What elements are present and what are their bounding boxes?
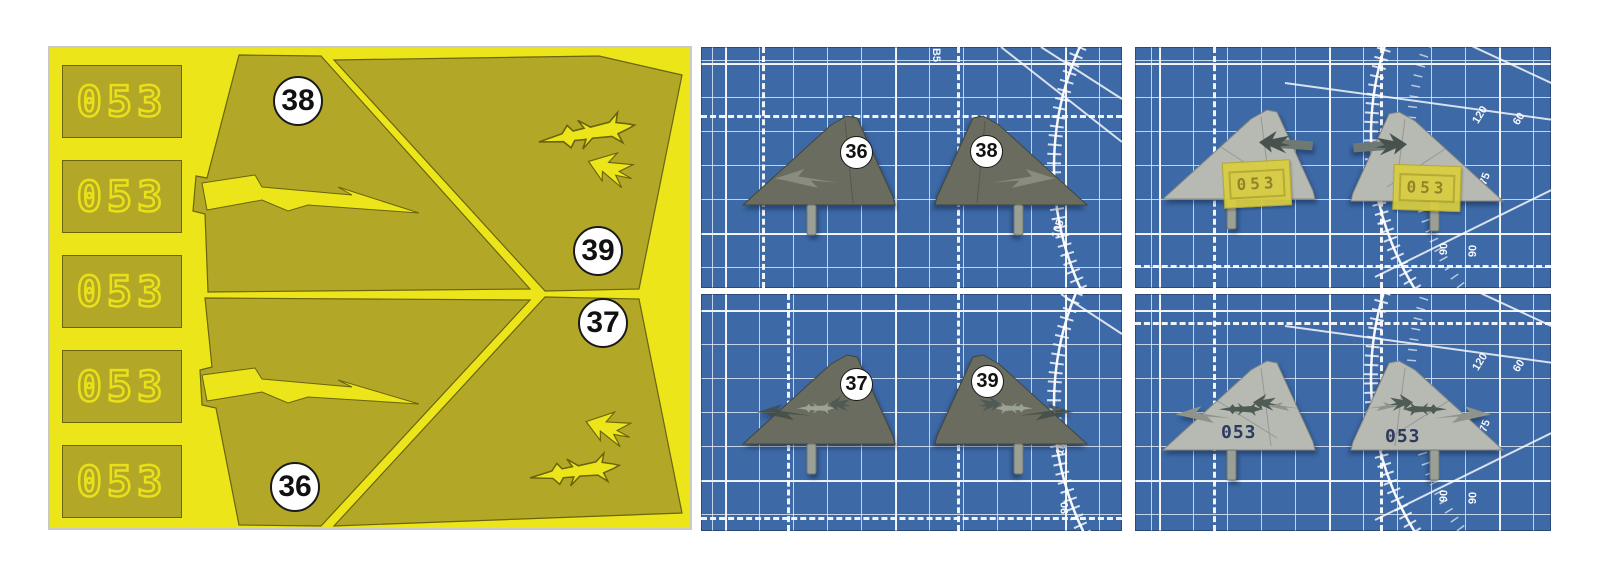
fin-number-stencil-right: 053 xyxy=(1385,426,1421,447)
photo-fins-masked: 120 60 105 75 90 90 053 053 xyxy=(1135,47,1551,288)
mat-degree-label: 90 xyxy=(1438,243,1450,256)
modeling-collage: 053 053 053 053 053 38 39 37 36 B5 105 xyxy=(0,0,1610,588)
fin-number-badge-38: 38 xyxy=(970,135,1003,168)
stencil-rect: 053 xyxy=(62,65,182,138)
stencil-rect: 053 xyxy=(62,255,182,328)
mask-sheet-panel: 053 053 053 053 053 38 39 37 36 xyxy=(48,46,692,530)
fin-pin xyxy=(1430,450,1439,480)
part-number-badge-38: 38 xyxy=(273,76,323,126)
part-number-badge-39: 39 xyxy=(573,226,623,276)
stencil-text: 053 xyxy=(77,77,168,126)
stencil-rect: 053 xyxy=(62,445,182,518)
fin-number-stencil-left: 053 xyxy=(1221,422,1257,443)
fin-number-badge-37: 37 xyxy=(840,368,873,401)
stencil-rect: 053 xyxy=(62,160,182,233)
tape-stencil-window: 053 xyxy=(1398,173,1456,203)
tape-stencil-text: 053 xyxy=(1406,177,1448,197)
mat-degree-label: 90 xyxy=(1059,502,1071,514)
fin-number-badge-39: 39 xyxy=(971,365,1004,398)
masking-tape-right: 053 xyxy=(1392,164,1462,212)
tape-stencil-text: 053 xyxy=(1236,173,1278,194)
mat-degree-label: 90 xyxy=(1467,245,1479,258)
mat-degree-label: 90 xyxy=(1438,490,1450,503)
tail-fin-38 xyxy=(929,113,1089,243)
stencil-text: 053 xyxy=(77,267,168,316)
mat-degree-label: 90 xyxy=(1467,492,1479,505)
fin-pin xyxy=(807,444,816,474)
tape-stencil-window: 053 xyxy=(1228,169,1286,200)
photo-fins-36-38: B5 105 36 38 xyxy=(701,47,1122,288)
tail-fin-39 xyxy=(929,352,1089,482)
stencil-text: 053 xyxy=(77,362,168,411)
photo-fins-37-39: 105 90 37 39 xyxy=(701,294,1122,531)
fin-pin xyxy=(1014,444,1023,474)
fin-pin xyxy=(807,205,816,235)
mat-size-label: B5 xyxy=(930,48,942,62)
stencil-text: 053 xyxy=(77,457,168,506)
part-number-badge-37: 37 xyxy=(578,298,628,348)
stencil-rect: 053 xyxy=(62,350,182,423)
tail-fin-37 xyxy=(741,352,901,482)
photo-fins-painted: 120 60 105 75 90 90 053 053 xyxy=(1135,294,1551,531)
tail-fin-painted-right xyxy=(1345,358,1505,488)
fin-pin xyxy=(1227,450,1236,480)
tail-fin-36 xyxy=(741,113,901,243)
part-number-badge-36: 36 xyxy=(270,462,320,512)
masking-tape-left: 053 xyxy=(1222,159,1292,208)
fin-pin xyxy=(1014,205,1023,235)
stencil-text: 053 xyxy=(77,172,168,221)
fin-number-badge-36: 36 xyxy=(840,136,873,169)
